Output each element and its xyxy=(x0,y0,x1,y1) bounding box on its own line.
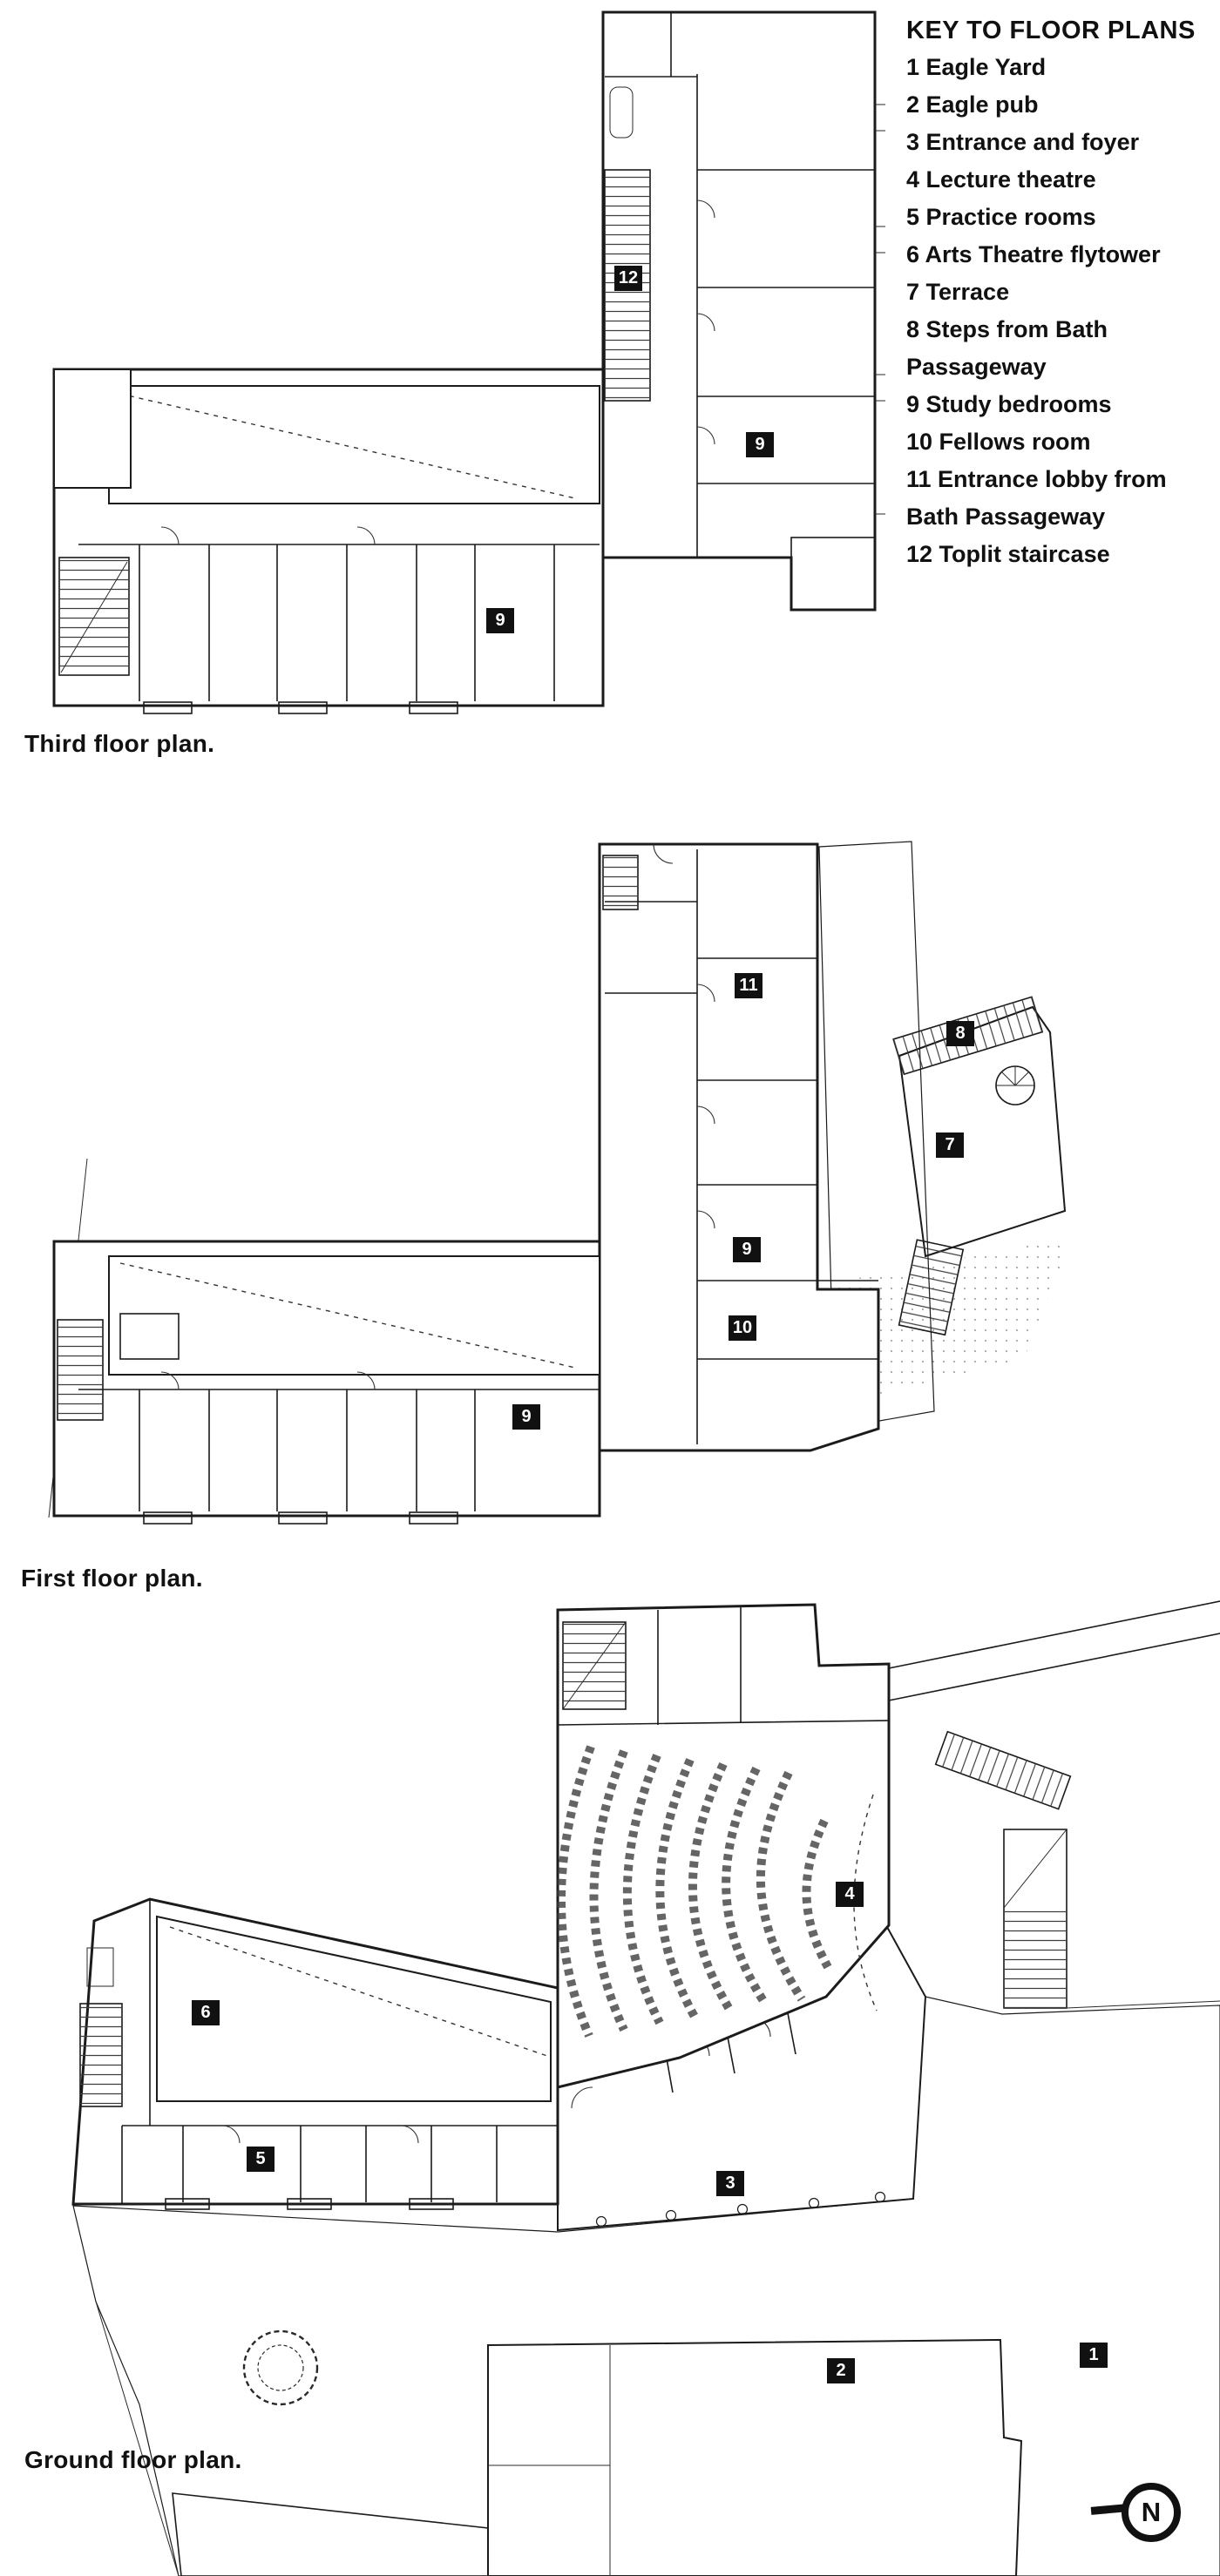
ground-floor-plan xyxy=(73,1601,1220,2576)
label-study-bedrooms: 9 xyxy=(486,608,514,633)
key-item: 7 Terrace xyxy=(906,274,1220,311)
first-floor-title: First floor plan. xyxy=(21,1565,203,1592)
key-title: KEY TO FLOOR PLANS xyxy=(906,12,1220,49)
north-arrow: N xyxy=(1122,2483,1181,2542)
label-arts-theatre-flytower: 6 xyxy=(192,2000,220,2025)
key-item: 3 Entrance and foyer xyxy=(906,124,1220,161)
label-terrace: 7 xyxy=(936,1132,964,1158)
label-fellows-room: 10 xyxy=(729,1315,756,1341)
key-item: 4 Lecture theatre xyxy=(906,161,1220,199)
label-study-bedrooms: 9 xyxy=(512,1404,540,1430)
key-item: 6 Arts Theatre flytower xyxy=(906,236,1220,274)
label-practice-rooms: 5 xyxy=(247,2147,274,2172)
first-floor-plan xyxy=(49,842,1072,1524)
key-item: 12 Toplit staircase xyxy=(906,536,1220,573)
label-eagle-yard: 1 xyxy=(1080,2343,1108,2368)
label-study-bedrooms: 9 xyxy=(746,432,774,457)
label-eagle-pub: 2 xyxy=(827,2358,855,2383)
key-item: 11 Entrance lobby from Bath Passageway xyxy=(906,461,1220,536)
key-item: 2 Eagle pub xyxy=(906,86,1220,124)
key-item: 1 Eagle Yard xyxy=(906,49,1220,86)
scanned-floor-plans-page: KEY TO FLOOR PLANS 1 Eagle Yard 2 Eagle … xyxy=(0,0,1220,2576)
key-to-floor-plans: KEY TO FLOOR PLANS 1 Eagle Yard 2 Eagle … xyxy=(906,12,1220,573)
eagle-pub-building xyxy=(488,2340,1021,2576)
label-toplit-staircase: 12 xyxy=(614,266,642,291)
passageway-stair xyxy=(936,1732,1071,1809)
north-arrow-letter: N xyxy=(1142,2497,1161,2527)
ground-floor-title: Ground floor plan. xyxy=(24,2446,242,2474)
label-study-bedrooms: 9 xyxy=(733,1237,761,1262)
key-item: 8 Steps from Bath Passageway xyxy=(906,311,1220,386)
key-item: 5 Practice rooms xyxy=(906,199,1220,236)
spiral-stair xyxy=(996,1066,1034,1105)
key-item: 9 Study bedrooms xyxy=(906,386,1220,423)
key-item: 10 Fellows room xyxy=(906,423,1220,461)
third-floor-plan xyxy=(54,12,885,713)
tree-symbol xyxy=(244,2331,317,2404)
label-lecture-theatre: 4 xyxy=(836,1882,864,1907)
third-floor-title: Third floor plan. xyxy=(24,730,214,758)
label-entrance-lobby: 11 xyxy=(735,973,762,998)
label-entrance-foyer: 3 xyxy=(716,2171,744,2196)
label-steps-bath: 8 xyxy=(946,1021,974,1046)
